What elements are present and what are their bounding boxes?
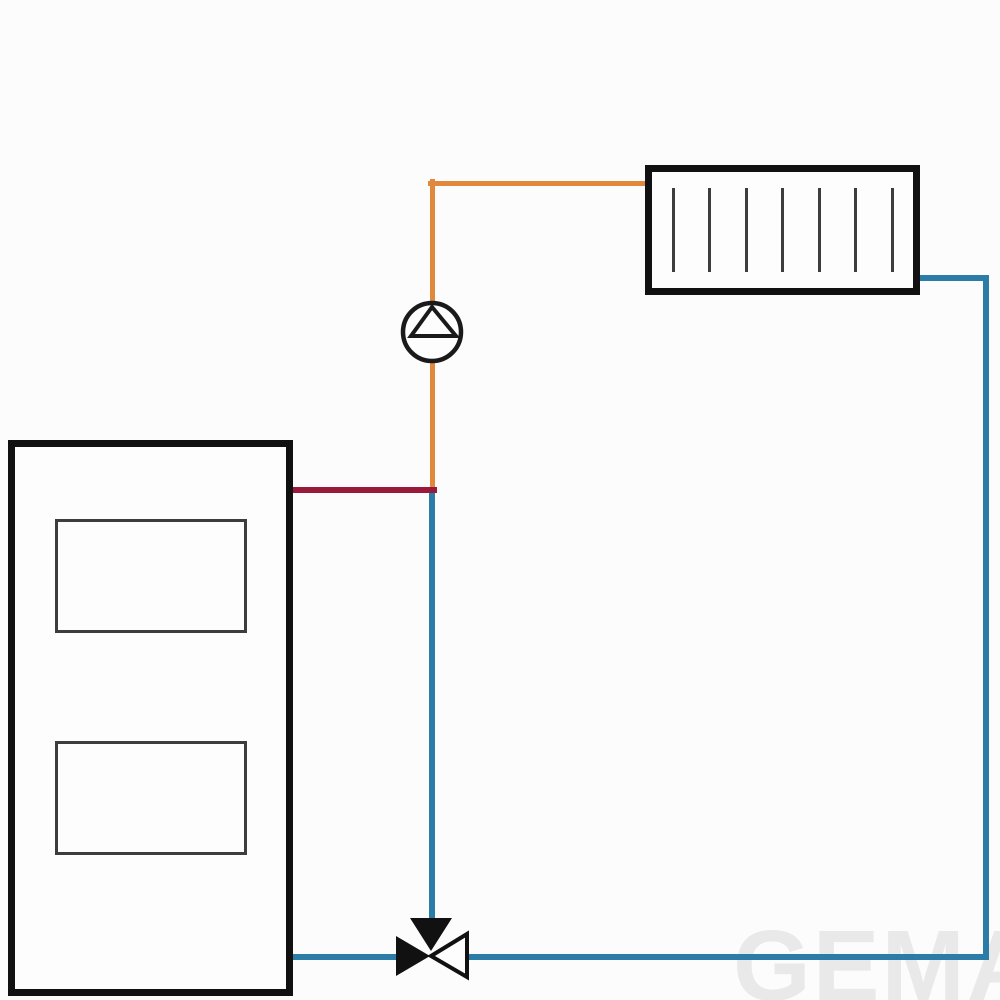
valve-left-triangle-icon (396, 936, 430, 976)
symbols-layer (0, 0, 1000, 1000)
diagram-canvas: GEMA (0, 0, 1000, 1000)
